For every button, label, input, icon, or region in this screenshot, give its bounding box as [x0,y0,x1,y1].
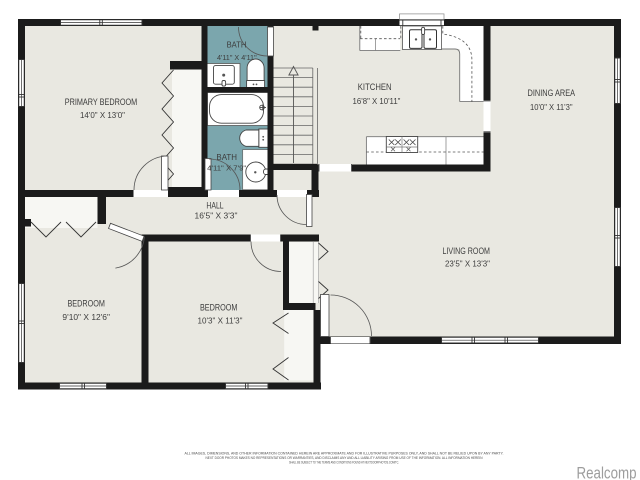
svg-text:BEDROOM: BEDROOM [200,303,238,313]
svg-text:23'5" X 13'3": 23'5" X 13'3" [445,260,490,269]
svg-text:BEDROOM: BEDROOM [67,299,105,309]
svg-text:10'0" X 11'3": 10'0" X 11'3" [530,103,573,112]
svg-text:4'11" X 7'9": 4'11" X 7'9" [207,163,246,172]
svg-text:KITCHEN: KITCHEN [358,82,392,92]
svg-text:DINING AREA: DINING AREA [528,88,576,98]
svg-text:Realcomp: Realcomp [577,464,637,480]
svg-text:16'5" X 3'3": 16'5" X 3'3" [195,212,238,221]
svg-text:10'3" X 11'3": 10'3" X 11'3" [198,317,243,326]
svg-text:PRIMARY BEDROOM: PRIMARY BEDROOM [65,97,138,107]
svg-text:BATH: BATH [227,40,247,49]
svg-text:LIVING ROOM: LIVING ROOM [442,246,490,256]
svg-text:BATH: BATH [216,153,237,162]
svg-text:9'10" X 12'6": 9'10" X 12'6" [62,313,110,322]
svg-text:14'0" X 13'0": 14'0" X 13'0" [80,111,125,120]
svg-text:HALL: HALL [206,200,223,210]
svg-text:16'8" X 10'11": 16'8" X 10'11" [353,97,401,106]
svg-text:SHALL BE SUBJECT TO THE TERMS: SHALL BE SUBJECT TO THE TERMS AND CONDIT… [289,460,399,465]
svg-text:4'11" X 4'11": 4'11" X 4'11" [217,53,257,62]
